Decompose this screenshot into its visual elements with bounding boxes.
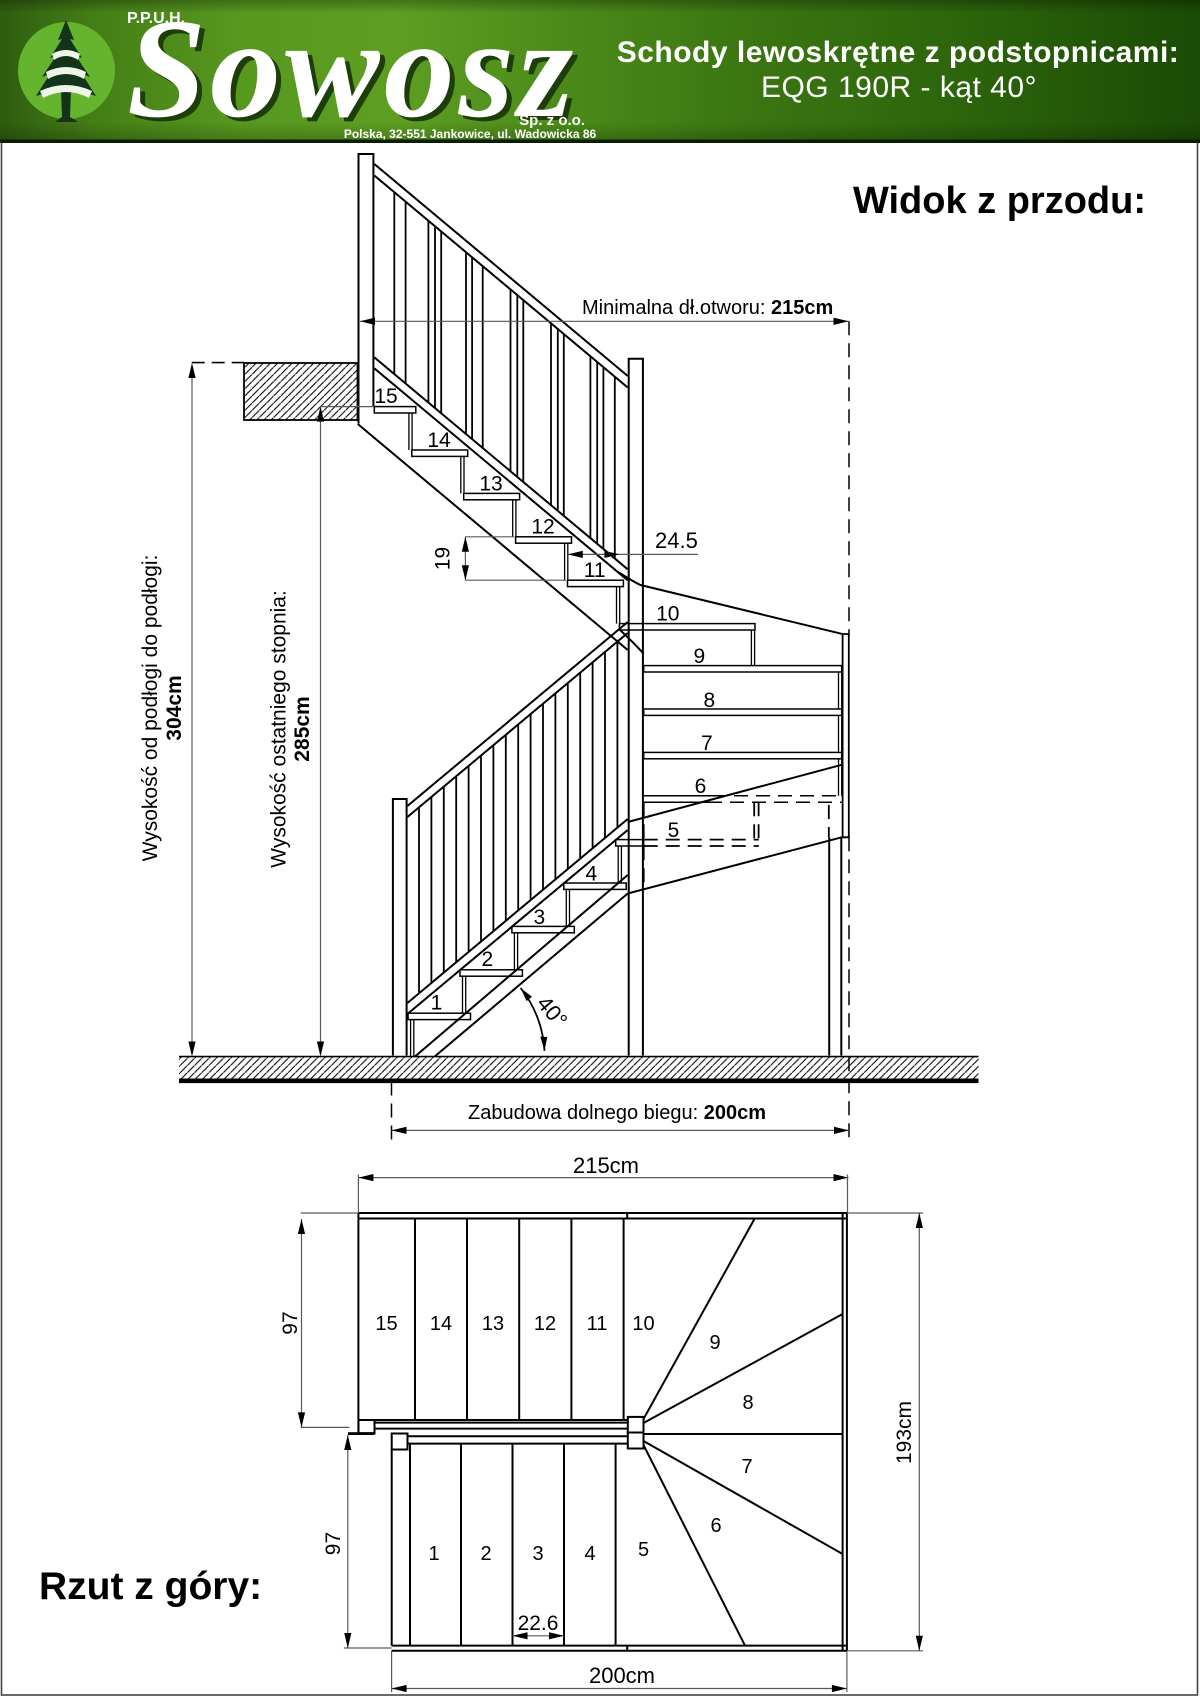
svg-text:9: 9 (709, 1332, 720, 1354)
svg-text:6: 6 (710, 1515, 721, 1537)
svg-text:6: 6 (695, 775, 707, 798)
svg-text:Schody lewoskrętne z podstopni: Schody lewoskrętne z podstopnicami: (617, 36, 1180, 69)
svg-text:7: 7 (701, 732, 713, 755)
svg-text:14: 14 (427, 429, 451, 452)
svg-text:13: 13 (479, 473, 502, 496)
svg-text:Polska, 32-551 Jankowice, ul.: Polska, 32-551 Jankowice, ul. Wadowicka … (344, 127, 597, 141)
svg-text:24.5: 24.5 (655, 528, 698, 553)
svg-text:Wysokość od podłogi do podłogi: Wysokość od podłogi do podłogi: (139, 555, 162, 862)
svg-text:13: 13 (482, 1313, 504, 1335)
svg-text:7: 7 (741, 1456, 752, 1478)
svg-text:5: 5 (668, 819, 680, 842)
svg-text:3: 3 (532, 1543, 543, 1565)
svg-text:8: 8 (742, 1392, 753, 1414)
svg-text:Sowosz: Sowosz (127, 0, 577, 147)
svg-text:15: 15 (374, 385, 397, 408)
svg-text:12: 12 (534, 1313, 556, 1335)
svg-text:285cm: 285cm (291, 696, 314, 761)
svg-text:12: 12 (531, 516, 554, 539)
svg-text:8: 8 (704, 689, 716, 712)
svg-text:304cm: 304cm (163, 675, 186, 740)
svg-text:11: 11 (587, 1313, 608, 1335)
svg-text:Rzut z góry:: Rzut z góry: (39, 1565, 262, 1608)
svg-text:3: 3 (534, 906, 546, 929)
svg-text:2: 2 (480, 1543, 491, 1565)
svg-text:5: 5 (638, 1539, 649, 1561)
svg-text:EQG 190R - kąt 40°: EQG 190R - kąt 40° (761, 71, 1037, 104)
svg-text:15: 15 (375, 1313, 397, 1335)
svg-text:4: 4 (585, 863, 597, 886)
svg-text:10: 10 (632, 1313, 654, 1335)
svg-text:2: 2 (482, 948, 494, 971)
svg-text:1: 1 (431, 992, 443, 1015)
svg-text:Wysokość ostatniego stopnia:: Wysokość ostatniego stopnia: (268, 590, 291, 868)
svg-text:10: 10 (656, 603, 679, 626)
svg-text:14: 14 (430, 1313, 452, 1335)
svg-text:193cm: 193cm (893, 1401, 916, 1464)
svg-text:4: 4 (584, 1543, 595, 1565)
svg-text:97: 97 (322, 1532, 345, 1555)
svg-text:215cm: 215cm (573, 1153, 639, 1178)
svg-text:11: 11 (584, 559, 606, 582)
svg-text:Zabudowa dolnego biegu: 200cm: Zabudowa dolnego biegu: 200cm (468, 1102, 766, 1124)
svg-text:1: 1 (428, 1543, 439, 1565)
svg-text:200cm: 200cm (589, 1663, 655, 1688)
svg-text:Widok z przodu:: Widok z przodu: (853, 180, 1146, 222)
svg-text:19: 19 (432, 547, 455, 570)
svg-text:9: 9 (694, 645, 706, 668)
svg-text:22.6: 22.6 (518, 1612, 559, 1635)
svg-text:Minimalna dł.otworu: 215cm: Minimalna dł.otworu: 215cm (582, 297, 833, 319)
svg-text:97: 97 (279, 1311, 302, 1334)
